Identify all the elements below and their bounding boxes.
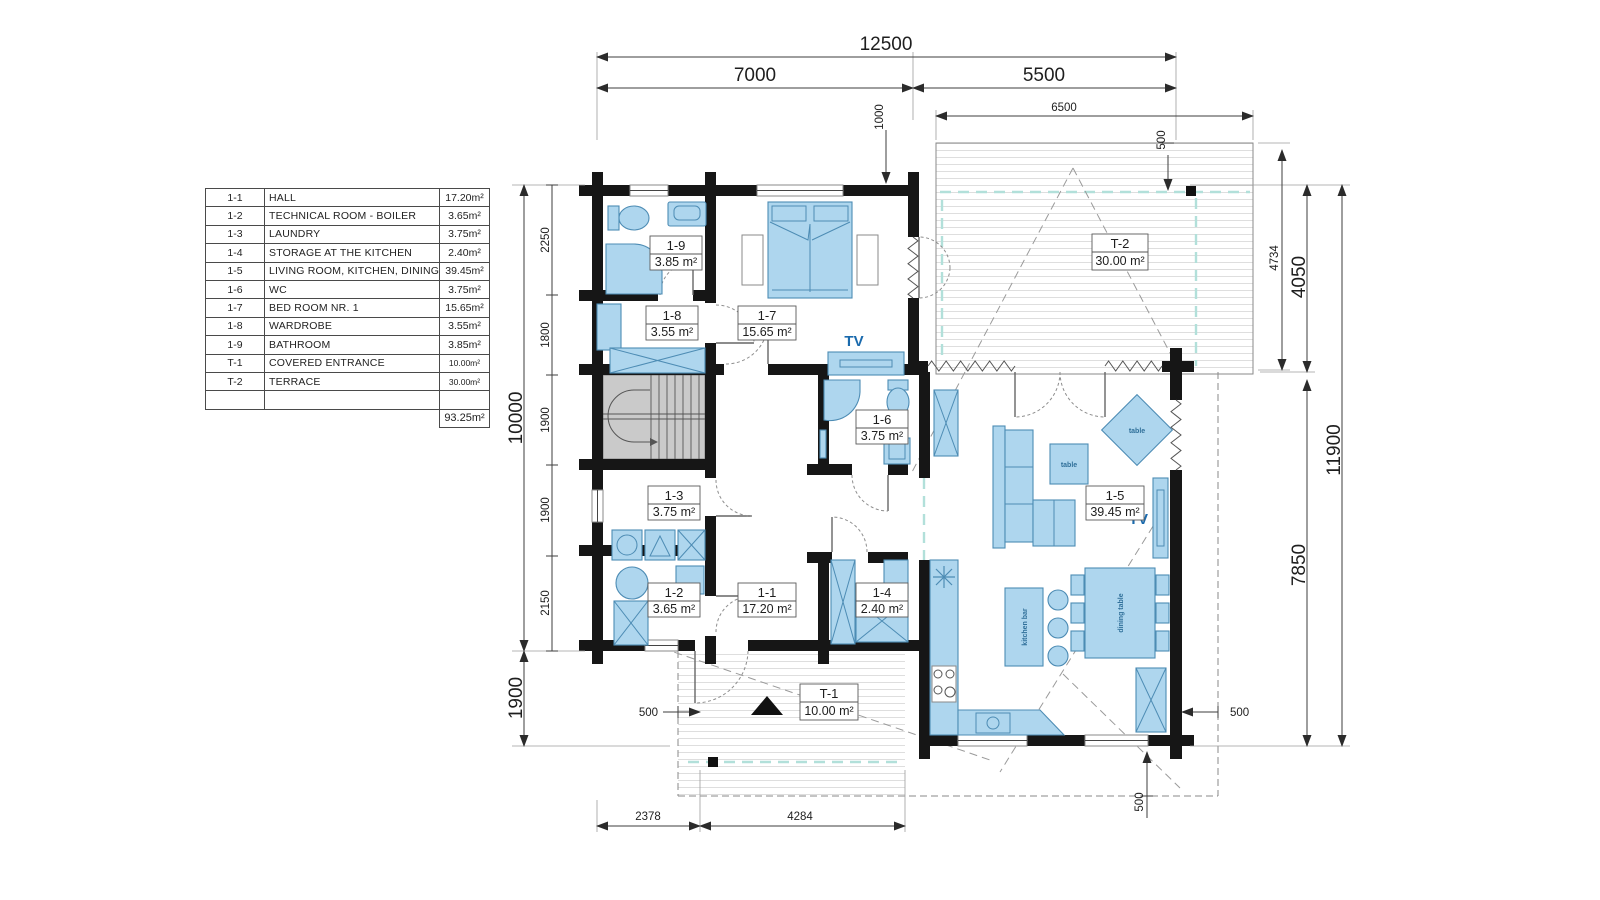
storage-shelf	[831, 560, 855, 644]
svg-text:1-4: 1-4	[873, 585, 892, 600]
svg-text:1-3: 1-3	[665, 488, 684, 503]
svg-text:4284: 4284	[787, 811, 813, 823]
svg-text:1-8: 1-8	[663, 308, 682, 323]
wardrobe-cabinet	[610, 348, 705, 373]
door-laundry	[716, 480, 752, 516]
coffee-table: table	[1050, 444, 1088, 484]
washbasin	[668, 202, 706, 226]
kitchen-corner-counter	[958, 710, 1064, 735]
dim-terrace-width: 6500	[936, 102, 1253, 116]
room-label-1-4: 1-42.40 m²	[856, 583, 908, 617]
svg-text:11900: 11900	[1324, 424, 1345, 475]
cabinet	[597, 304, 621, 350]
dim-right-lower: 7850	[1289, 380, 1310, 746]
kitchen-bar: kitchen bar	[1005, 588, 1043, 666]
svg-text:500: 500	[639, 707, 658, 719]
floor-plan-drawing: TV	[0, 0, 1600, 900]
wardrobe-cabinet	[934, 390, 958, 456]
bar-stools	[1048, 590, 1068, 666]
svg-text:T-1: T-1	[820, 686, 839, 701]
dim-terrace-offset: 1000	[874, 104, 886, 183]
svg-text:3.75 m²: 3.75 m²	[653, 505, 695, 519]
svg-text:1-2: 1-2	[665, 585, 684, 600]
dim-terrace-height: 4734	[1269, 150, 1282, 370]
room-label-1-1: 1-117.20 m²	[738, 583, 796, 617]
dim-bottom-mid: 4284	[700, 811, 905, 826]
svg-text:dining table: dining table	[1118, 593, 1125, 632]
svg-text:1800: 1800	[540, 322, 552, 348]
svg-text:1000: 1000	[874, 104, 886, 130]
svg-text:39.45 m²: 39.45 m²	[1090, 505, 1139, 519]
window	[630, 185, 668, 196]
dim-left-segments: 2250 1800 1900 1900 2150	[540, 185, 558, 651]
staircase	[603, 375, 705, 459]
toilet	[608, 206, 649, 230]
room-label-1-7: 1-715.65 m²	[738, 306, 796, 340]
dim-overhang-right: 500	[1182, 706, 1249, 719]
floor-plan-page: 1-1HALL17.20m² 1-2TECHNICAL ROOM - BOILE…	[0, 0, 1600, 900]
nightstand	[742, 235, 763, 285]
door-wc	[852, 475, 888, 511]
dim-bottom-left: 2378	[597, 811, 700, 826]
dim-right-total: 11900	[1324, 185, 1345, 746]
svg-text:3.85 m²: 3.85 m²	[655, 255, 697, 269]
window	[592, 490, 603, 522]
room-label-t2: T-230.00 m²	[1092, 234, 1148, 270]
stove	[932, 666, 956, 702]
svg-text:1900: 1900	[540, 497, 552, 523]
svg-text:1-7: 1-7	[758, 308, 777, 323]
window	[645, 640, 678, 651]
svg-text:500: 500	[1230, 707, 1249, 719]
dim-right-upper: 4050	[1289, 185, 1310, 372]
door-storage	[832, 517, 867, 552]
dryer	[645, 530, 675, 560]
glazed-wall-zigzag	[1171, 400, 1181, 470]
tv-cabinet	[828, 352, 904, 375]
dim-overall-width: 12500	[597, 34, 1176, 57]
dim-entrance-height: 1900	[506, 651, 527, 746]
dining-table: dining table	[1071, 568, 1169, 658]
svg-text:2150: 2150	[540, 590, 552, 616]
svg-text:17.20 m²: 17.20 m²	[742, 602, 791, 616]
svg-text:1-6: 1-6	[873, 412, 892, 427]
svg-text:T-2: T-2	[1111, 236, 1130, 251]
room-label-t1: T-110.00 m²	[800, 684, 858, 720]
svg-text:30.00 m²: 30.00 m²	[1095, 254, 1144, 268]
svg-text:7850: 7850	[1289, 544, 1310, 586]
shower	[824, 380, 860, 421]
svg-text:1-5: 1-5	[1106, 488, 1125, 503]
tv-cabinet	[1153, 478, 1168, 558]
roof-post-marker	[1186, 186, 1196, 196]
svg-text:1-1: 1-1	[758, 585, 777, 600]
table-label: table	[1129, 428, 1145, 435]
svg-text:3.65 m²: 3.65 m²	[653, 602, 695, 616]
dim-left-total: 10000	[506, 185, 527, 651]
room-label-1-3: 1-33.75 m²	[648, 486, 700, 520]
room-label-1-8: 1-83.55 m²	[646, 306, 698, 340]
dim-overhang-bottom: 500	[1134, 752, 1153, 818]
window	[1085, 735, 1148, 746]
svg-text:4050: 4050	[1289, 256, 1310, 298]
technical-cabinet	[614, 601, 648, 645]
glazed-wall-zigzag	[908, 237, 918, 298]
svg-text:15.65 m²: 15.65 m²	[742, 325, 791, 339]
room-label-1-9: 1-93.85 m²	[650, 236, 702, 270]
room-label-1-2: 1-23.65 m²	[648, 583, 700, 617]
nightstand	[857, 235, 878, 285]
svg-text:1900: 1900	[506, 677, 527, 719]
svg-text:6500: 6500	[1051, 102, 1077, 114]
radiator	[820, 430, 826, 458]
wardrobe-cabinet	[1136, 668, 1166, 732]
svg-text:kitchen bar: kitchen bar	[1022, 608, 1029, 646]
svg-text:4734: 4734	[1269, 245, 1281, 271]
svg-text:7000: 7000	[734, 65, 776, 86]
svg-text:2.40 m²: 2.40 m²	[861, 602, 903, 616]
svg-text:10.00 m²: 10.00 m²	[804, 704, 853, 718]
washer	[612, 530, 642, 560]
svg-text:12500: 12500	[860, 34, 913, 55]
door-living-terrace	[1015, 372, 1105, 417]
svg-text:3.75 m²: 3.75 m²	[861, 429, 903, 443]
window	[757, 185, 843, 196]
svg-text:500: 500	[1134, 792, 1146, 811]
roof-post-marker	[708, 757, 718, 767]
boiler	[616, 567, 648, 599]
room-label-1-6: 1-63.75 m²	[856, 410, 908, 444]
freezer-symbol-icon	[933, 566, 955, 588]
tv-label: TV	[844, 333, 863, 350]
laundry-cabinet	[678, 530, 705, 560]
svg-text:1900: 1900	[540, 407, 552, 433]
svg-text:2378: 2378	[635, 811, 661, 823]
dim-width-right: 5500	[913, 65, 1176, 88]
window	[958, 735, 1027, 746]
svg-text:10000: 10000	[506, 392, 527, 445]
svg-text:500: 500	[1156, 130, 1168, 149]
svg-text:table: table	[1061, 462, 1077, 469]
svg-text:1-9: 1-9	[667, 238, 686, 253]
svg-text:2250: 2250	[540, 227, 552, 253]
room-label-1-5: 1-539.45 m²	[1086, 486, 1144, 520]
svg-text:3.55 m²: 3.55 m²	[651, 325, 693, 339]
dim-width-left: 7000	[597, 65, 913, 88]
double-bed	[768, 202, 852, 298]
svg-text:5500: 5500	[1023, 65, 1065, 86]
